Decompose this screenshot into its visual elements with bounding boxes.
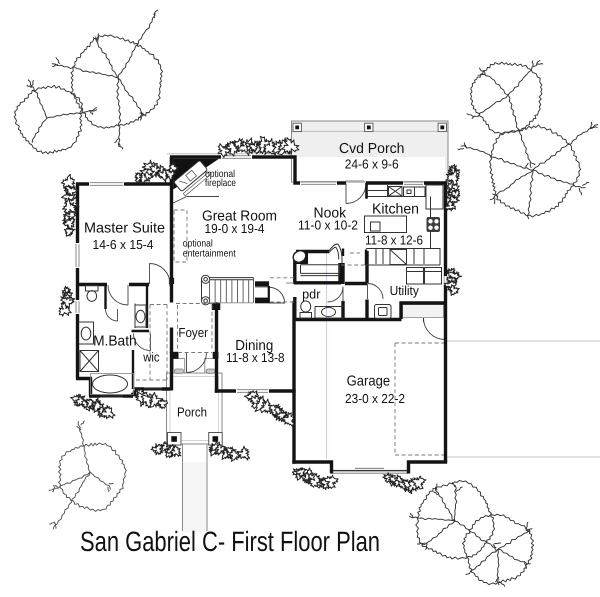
svg-text:Utility: Utility [390, 283, 420, 298]
svg-text:11-8 x 13-8: 11-8 x 13-8 [226, 350, 285, 365]
svg-text:fireplace: fireplace [205, 178, 236, 189]
svg-text:M.Bath: M.Bath [93, 333, 137, 349]
svg-text:Kitchen: Kitchen [372, 201, 419, 217]
svg-text:Foyer: Foyer [178, 325, 208, 340]
svg-text:San Gabriel C- First Floor Pla: San Gabriel C- First Floor Plan [80, 526, 380, 557]
svg-text:11-0 x 10-2: 11-0 x 10-2 [298, 218, 358, 233]
svg-text:11-8 x 12-6: 11-8 x 12-6 [365, 233, 423, 248]
svg-text:Garage: Garage [347, 374, 391, 390]
svg-text:14-6 x 15-4: 14-6 x 15-4 [93, 237, 154, 252]
svg-text:19-0 x 19-4: 19-0 x 19-4 [205, 221, 265, 236]
svg-text:pdr: pdr [302, 286, 321, 301]
svg-text:23-0 x 22-2: 23-0 x 22-2 [345, 391, 405, 406]
svg-text:wic: wic [142, 350, 160, 365]
svg-text:entertainment: entertainment [183, 248, 236, 259]
svg-text:Master Suite: Master Suite [84, 221, 165, 237]
svg-text:Cvd Porch: Cvd Porch [339, 141, 405, 157]
svg-text:24-6 x 9-6: 24-6 x 9-6 [345, 156, 399, 171]
svg-text:Porch: Porch [177, 404, 207, 419]
